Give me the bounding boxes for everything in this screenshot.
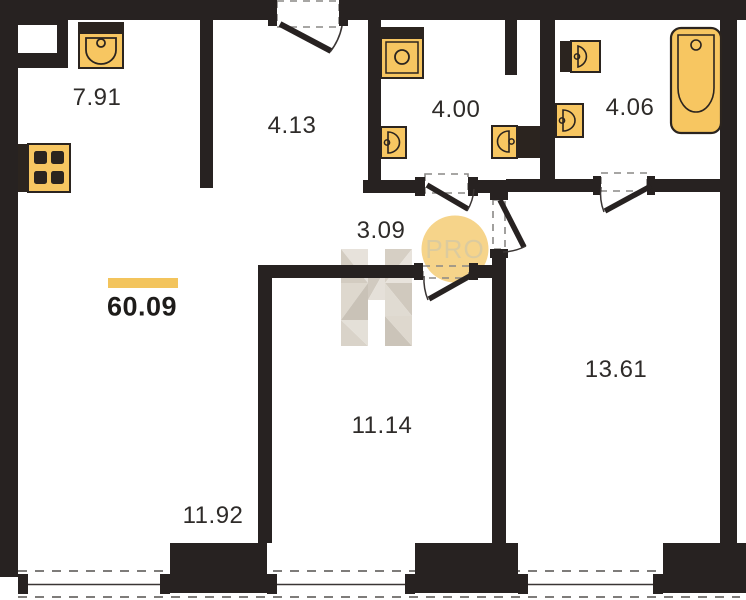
sink-icon [381,127,406,158]
room-label-hallway: 4.13 [268,112,317,140]
wall-segment [655,179,720,192]
floor-plan: PRO [0,0,746,600]
room-label-room-right: 13.61 [585,356,648,384]
bathtub-icon [671,28,721,133]
wall-pier [170,543,267,593]
accent-bar [108,278,178,288]
room-label-room-left: 11.92 [183,502,244,530]
wall-segment [540,20,555,192]
stove-icon [18,144,70,192]
room-label-room-middle: 11.14 [352,412,413,440]
sink-icon [556,104,583,137]
kitchen-sink-icon [79,23,123,68]
room-label-bathroom-left: 4.00 [432,96,481,124]
room-label-kitchen: 7.91 [73,84,122,112]
room-label-corridor: 3.09 [357,217,406,245]
washing-machine-icon [381,28,423,78]
wall-pier [415,543,518,593]
door-opening [601,173,647,191]
bathroom-left-door door-swing-icon [427,185,474,211]
wall-segment [506,179,595,192]
wall-pier [663,543,746,593]
bathroom-right-door door-swing-icon [601,186,651,212]
wall-segment [720,20,737,543]
toilet-icon [560,41,600,72]
toilet-icon [492,126,540,158]
wall-segment [258,265,417,278]
h-logo-watermark [341,249,412,346]
room-right-door door-swing-icon [500,200,526,252]
pro-badge-text: PRO [425,234,484,264]
wall-segment [368,20,381,192]
wall-segment [492,258,506,543]
wall-segment [200,20,213,188]
total-area-label: 60.09 [107,292,177,323]
wall-niche [18,25,57,53]
entrance-door door-swing-icon [280,24,342,52]
wall-segment [258,265,272,543]
wall-segment [340,0,746,20]
wall-pillar [505,20,517,75]
wall-segment [0,20,18,577]
wall-segment [363,180,415,193]
wall-segment [478,265,492,278]
entrance-opening [277,1,339,27]
room-label-bathroom-right: 4.06 [606,94,655,122]
